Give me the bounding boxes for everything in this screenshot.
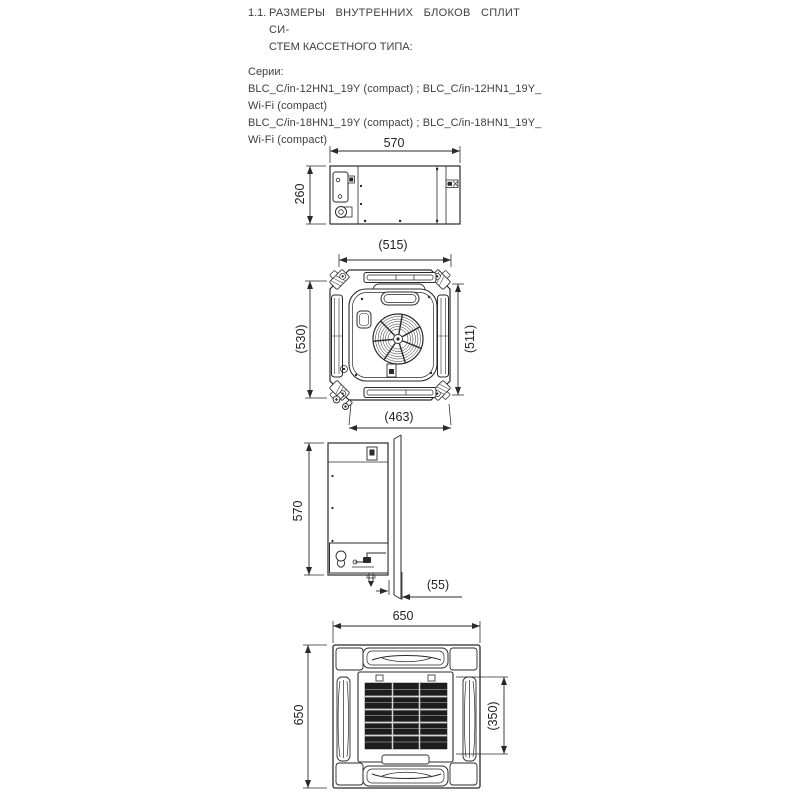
dim-label-cassette-top: (515) [378,238,407,252]
dim-label-cassette-bottom: (463) [384,410,413,424]
drawing-front-panel [303,621,508,788]
dim-label-side-height: 570 [291,501,305,522]
dim-label-cassette-right: (511) [463,325,477,353]
drawing-side-view [304,435,462,600]
fan-icon [373,314,423,364]
dim-label-panel-width: 650 [393,609,414,623]
dim-label-body-height: 260 [293,184,307,205]
manual-page: 1.1. РАЗМЕРЫ ВНУТРЕННИХ БЛОКОВ СПЛИТ СИ-… [0,0,800,800]
drawing-body-top-view [306,146,460,224]
dim-label-side-flange-depth: (55) [427,578,449,592]
drawing-cassette-bottom-view [305,254,464,428]
dim-label-panel-height: 650 [292,705,306,726]
intake-grille [365,683,447,749]
technical-drawings [0,0,800,800]
dim-label-cassette-left: (530) [294,324,308,353]
dim-label-panel-grille: (350) [486,701,500,730]
dim-label-body-width: 570 [384,136,405,150]
